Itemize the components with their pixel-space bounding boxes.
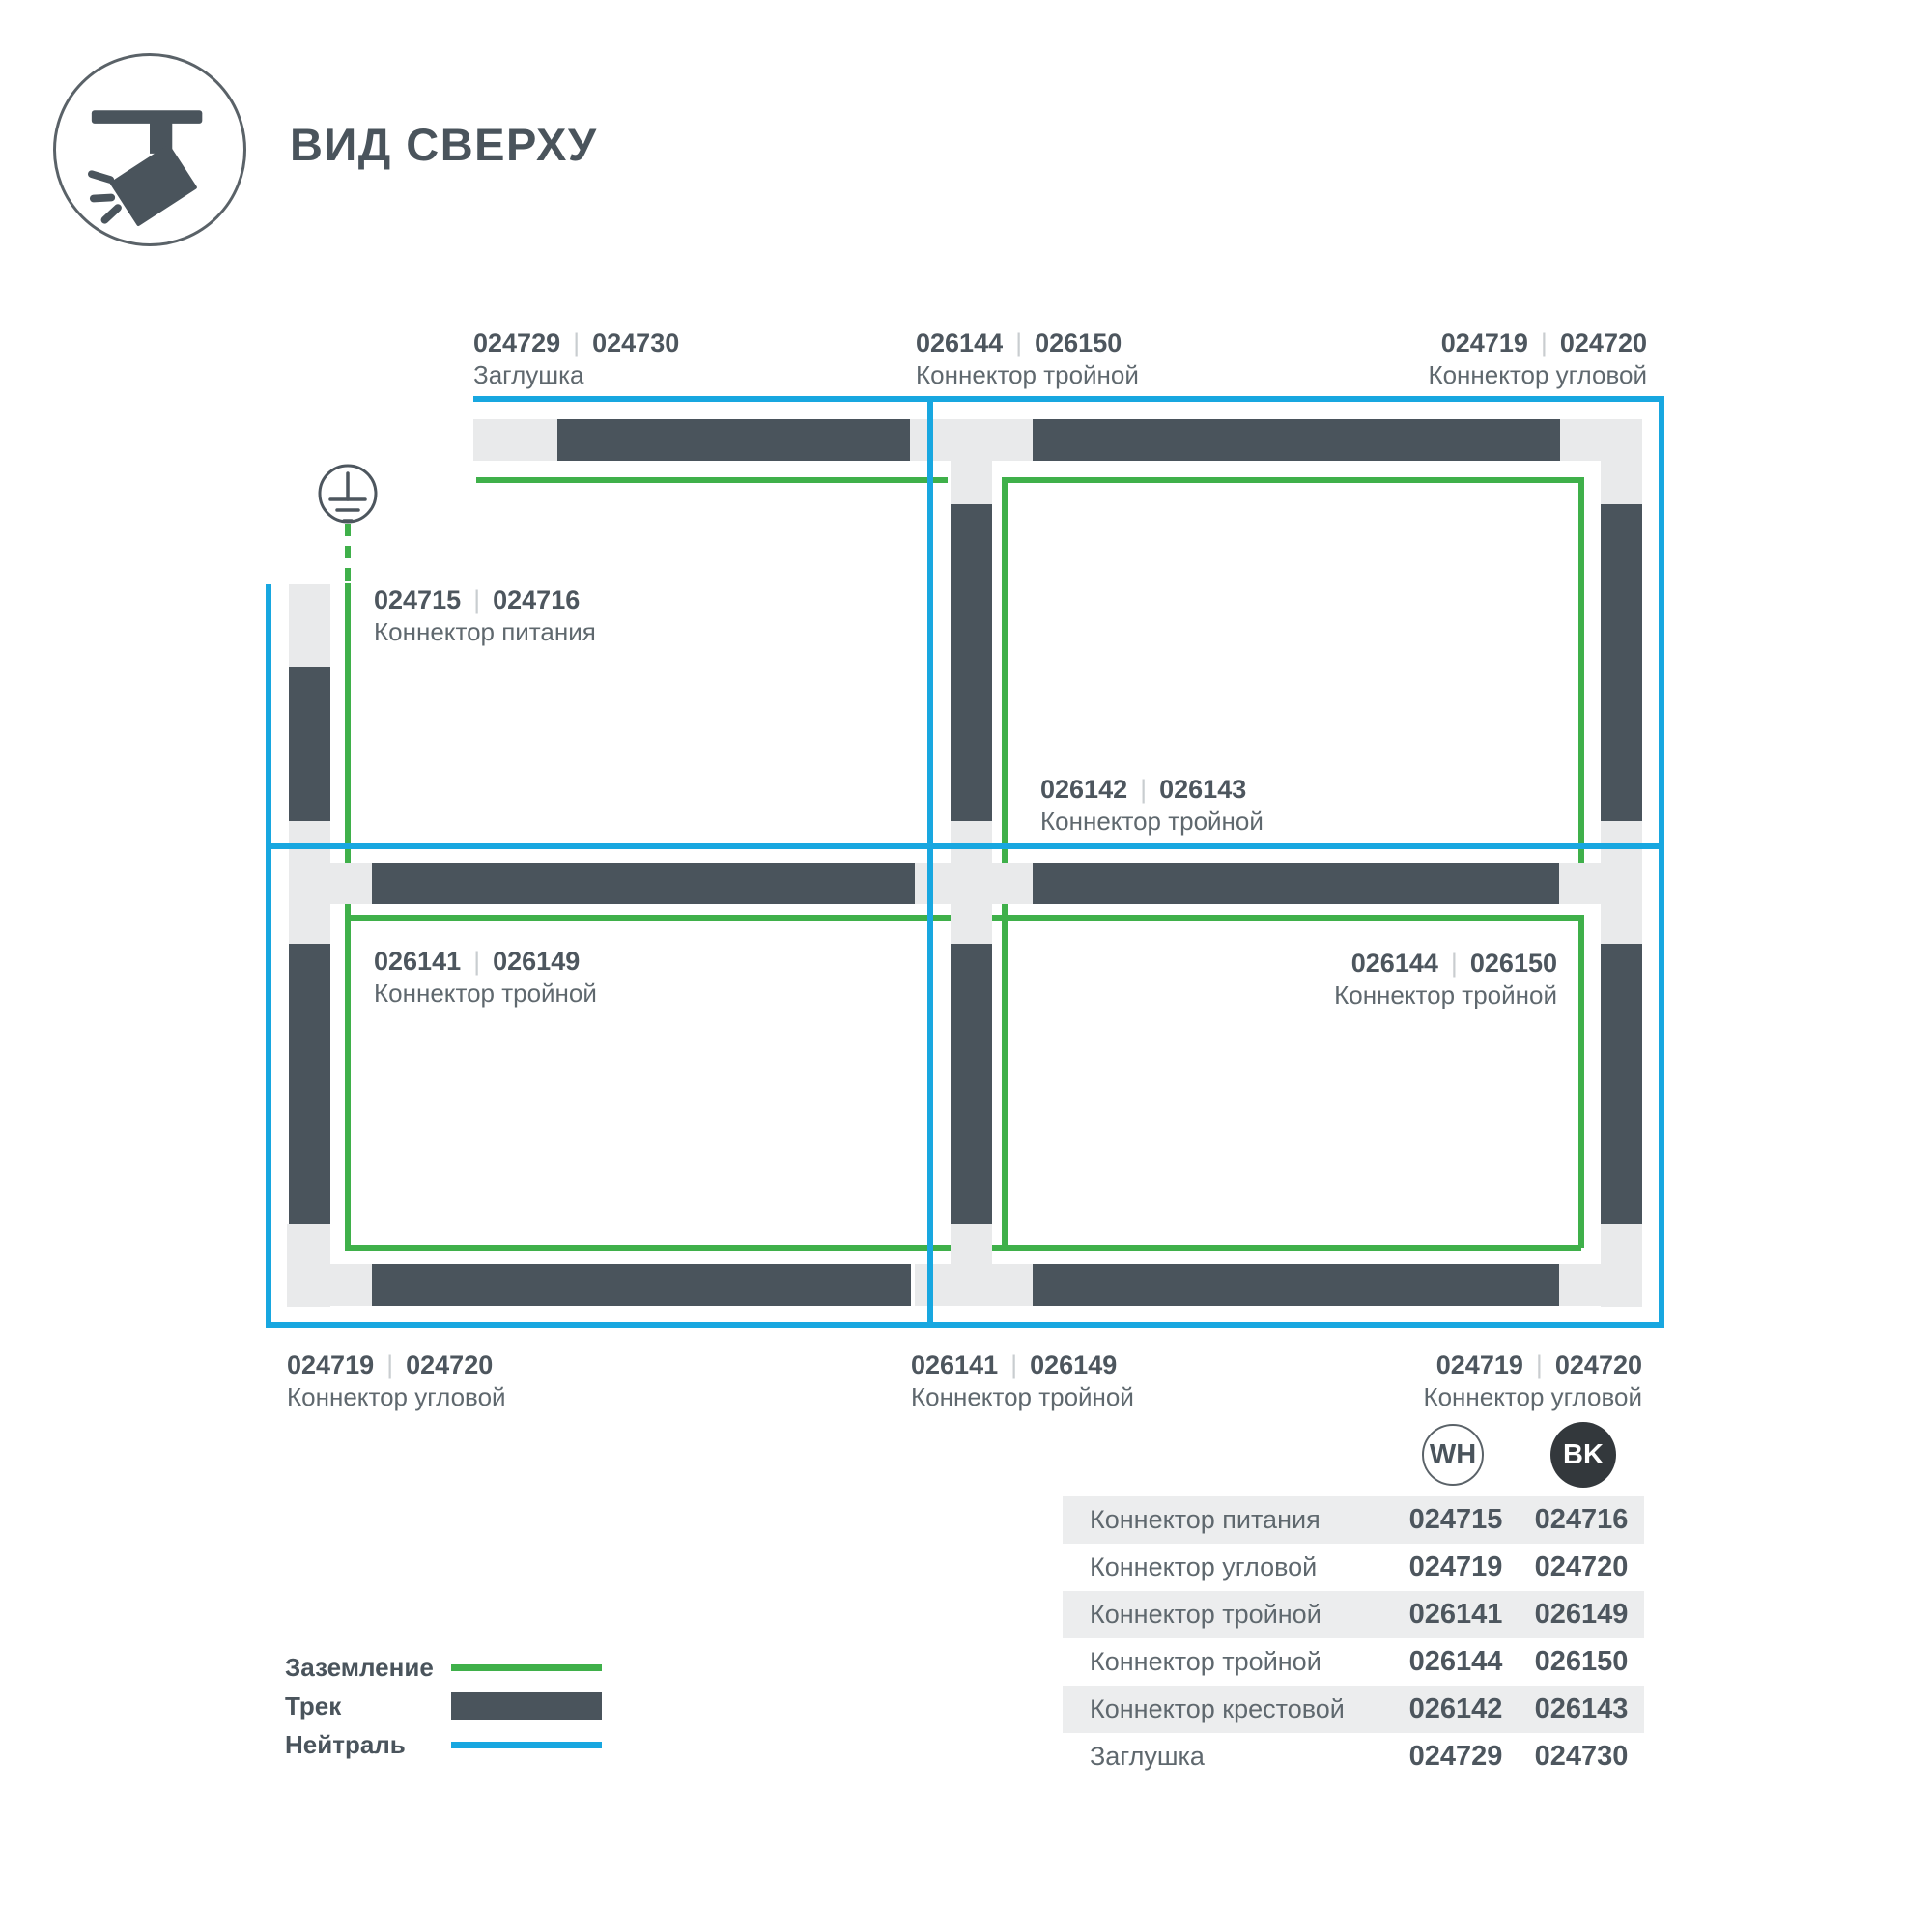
part-code-bk: 026150 [1519, 1646, 1644, 1678]
label-triple-connector-mid-right: 026144|026150 Коннектор тройной [1334, 947, 1557, 1010]
part-code-wh: 024719 [1393, 1551, 1519, 1583]
label-power-connector: 024715|024716 Коннектор питания [374, 583, 596, 647]
part-code-bk: 024716 [1519, 1504, 1644, 1536]
part-code-wh: 024715 [1393, 1504, 1519, 1536]
power-connector [289, 584, 330, 667]
neutral-line-swatch [451, 1742, 602, 1748]
part-name: Коннектор тройной [1063, 1600, 1393, 1630]
endcap-connector [473, 419, 557, 461]
legend: Заземление Трек Нейтраль [285, 1648, 602, 1764]
label-triple-connector-top: 026144|026150 Коннектор тройной [916, 327, 1139, 390]
legend-item-neutral: Нейтраль [285, 1725, 602, 1764]
table-row: Коннектор крестовой 026142 026143 [1063, 1686, 1644, 1733]
part-code-wh: 026142 [1393, 1693, 1519, 1725]
table-row: Коннектор тройной 026144 026150 [1063, 1638, 1644, 1686]
earth-ground-icon [320, 466, 376, 522]
table-row: Коннектор угловой 024719 024720 [1063, 1544, 1644, 1591]
table-row: Коннектор тройной 026141 026149 [1063, 1591, 1644, 1638]
parts-table: Коннектор питания 024715 024716 Коннекто… [1063, 1496, 1644, 1780]
part-code-bk: 026149 [1519, 1599, 1644, 1631]
part-name: Коннектор тройной [1063, 1647, 1393, 1677]
label-endcap-top: 024729|024730 Заглушка [473, 327, 679, 390]
legend-item-ground: Заземление [285, 1648, 602, 1687]
label-triple-connector-bottom: 026141|026149 Коннектор тройной [911, 1349, 1134, 1412]
part-code-bk: 026143 [1519, 1693, 1644, 1725]
part-code-bk: 024720 [1519, 1551, 1644, 1583]
legend-item-track: Трек [285, 1687, 602, 1725]
table-row: Коннектор питания 024715 024716 [1063, 1496, 1644, 1544]
black-color-badge: BK [1550, 1422, 1616, 1488]
part-code-bk: 024730 [1519, 1741, 1644, 1773]
part-code-wh: 026144 [1393, 1646, 1519, 1678]
white-color-badge: WH [1422, 1424, 1484, 1486]
page: ВИД СВЕРХУ [0, 0, 1932, 1932]
label-triple-connector-mid-left: 026141|026149 Коннектор тройной [374, 945, 597, 1009]
part-code-wh: 026141 [1393, 1599, 1519, 1631]
part-name: Коннектор крестовой [1063, 1694, 1393, 1724]
part-name: Коннектор угловой [1063, 1552, 1393, 1582]
ground-line-swatch [451, 1664, 602, 1671]
label-corner-connector-bottom-right: 024719|024720 Коннектор угловой [1423, 1349, 1642, 1412]
track-bar-swatch [451, 1692, 602, 1720]
label-corner-connector-top-right: 024719|024720 Коннектор угловой [1428, 327, 1647, 390]
part-name: Коннектор питания [1063, 1505, 1393, 1535]
part-code-wh: 024729 [1393, 1741, 1519, 1773]
label-corner-connector-bottom-left: 024719|024720 Коннектор угловой [287, 1349, 506, 1412]
table-row: Заглушка 024729 024730 [1063, 1733, 1644, 1780]
label-cross-connector-center: 026142|026143 Коннектор тройной [1040, 773, 1264, 837]
part-name: Заглушка [1063, 1742, 1393, 1772]
